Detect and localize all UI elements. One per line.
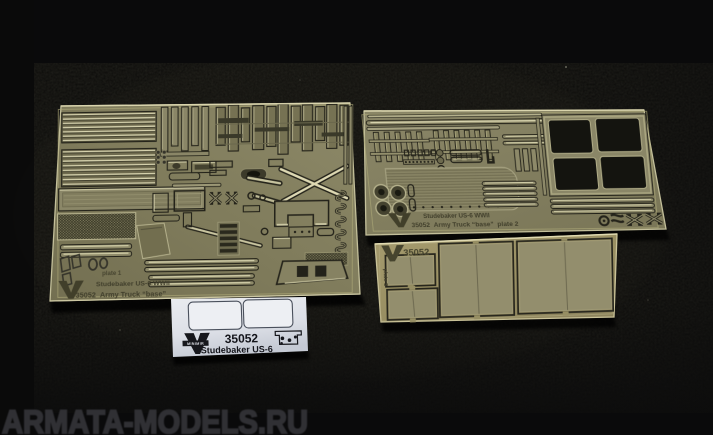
svg-text:35052 Army Truck “base” plat: 35052 Army Truck “base” plate 2 (411, 221, 519, 229)
svg-text:plate 3: plate 3 (382, 269, 388, 287)
svg-text:ARMATA-MODELS.RU: ARMATA-MODELS.RU (2, 404, 308, 435)
svg-text:plate 1: plate 1 (102, 271, 122, 277)
svg-text:MINIMIR: MINIMIR (187, 342, 204, 346)
svg-text:Studebaker US-6 WWII: Studebaker US-6 WWII (423, 212, 490, 220)
svg-text:35052: 35052 (403, 247, 429, 259)
svg-text:Studebaker US-6 WWII: Studebaker US-6 WWII (96, 280, 170, 288)
svg-text:Studebaker US-6: Studebaker US-6 (201, 344, 273, 355)
